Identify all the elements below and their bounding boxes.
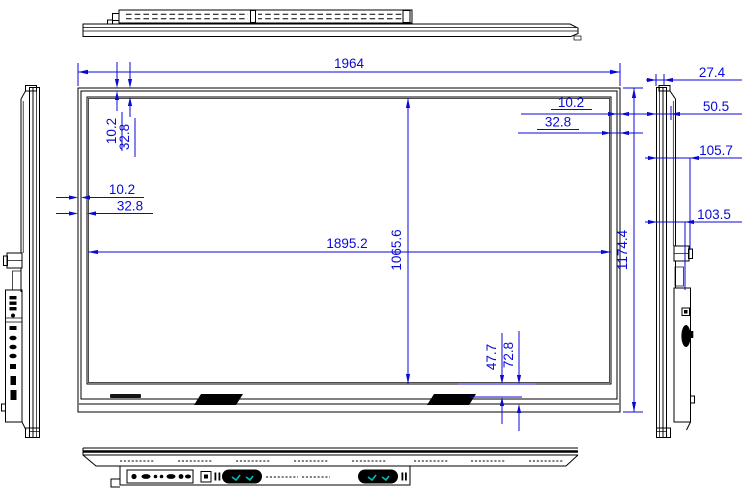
right-connector-box xyxy=(674,288,695,422)
dim-bezel-right: 10.2 32.8 xyxy=(518,95,643,135)
dim-overall-width: 1964 xyxy=(78,56,620,86)
dim-panel-depth-label: 27.4 xyxy=(699,65,726,80)
right-glass-slab xyxy=(657,88,667,438)
bottom-speaker-module-left xyxy=(222,470,262,484)
display-dimension-drawing: 1964 1174.4 1895.2 1065.6 xyxy=(0,0,748,496)
dim-bezel-bottom-b-label: 72.8 xyxy=(501,342,516,368)
dim-bezel-bottom-a-label: 47.7 xyxy=(484,344,499,370)
dim-bezel-top: 10.2 32.8 xyxy=(104,62,135,157)
bottom-speaker-module-right xyxy=(358,470,398,484)
dim-overall-height-label: 1174.4 xyxy=(615,229,630,270)
dim-back-box-depth-label: 103.5 xyxy=(697,207,731,222)
dim-bezel-left-b-label: 32.8 xyxy=(117,199,143,214)
left-connector-box xyxy=(2,290,23,422)
bottom-view xyxy=(83,448,578,487)
bottom-speaker-right xyxy=(427,394,476,405)
dim-bezel-top-b-label: 32.8 xyxy=(117,124,132,150)
bottom-speaker-left xyxy=(194,394,243,405)
top-view xyxy=(83,10,581,40)
bottom-connector-panel xyxy=(127,470,193,483)
dim-overall-width-label: 1964 xyxy=(334,56,365,71)
dim-panel-depth: 27.4 xyxy=(646,65,742,86)
right-side-view xyxy=(657,86,695,438)
dim-overall-height: 1174.4 xyxy=(615,88,643,412)
dim-bezel-left-a-label: 10.2 xyxy=(109,182,135,197)
dim-front-section-depth: 50.5 xyxy=(640,99,742,120)
dim-front-section-depth-label: 50.5 xyxy=(703,99,729,114)
dim-active-height: 1065.6 xyxy=(389,98,410,384)
left-side-view xyxy=(2,86,40,438)
dim-bezel-bottom: 47.7 72.8 xyxy=(458,331,536,431)
dim-active-height-label: 1065.6 xyxy=(389,229,404,270)
top-vent-grille xyxy=(113,10,413,23)
dim-handle-depth-label: 105.7 xyxy=(699,143,733,158)
dimensions: 1964 1174.4 1895.2 1065.6 xyxy=(56,56,742,431)
power-inlet xyxy=(681,325,690,347)
left-top-cap xyxy=(26,86,37,92)
dim-active-width: 1895.2 xyxy=(88,236,611,254)
brand-logo xyxy=(110,394,141,398)
dim-bezel-right-a-label: 10.2 xyxy=(558,95,584,110)
left-glass-slab xyxy=(30,88,40,438)
bottom-foot xyxy=(111,479,120,487)
dim-bezel-right-b-label: 32.8 xyxy=(545,115,571,130)
dim-active-width-label: 1895.2 xyxy=(326,236,367,251)
left-port-glyphs xyxy=(9,296,16,400)
left-handle-stub xyxy=(4,253,23,268)
dim-bezel-left: 10.2 32.8 xyxy=(56,182,153,216)
right-top-cap xyxy=(659,86,670,92)
dimension-drawing-page: 1964 1174.4 1895.2 1065.6 xyxy=(0,0,748,496)
